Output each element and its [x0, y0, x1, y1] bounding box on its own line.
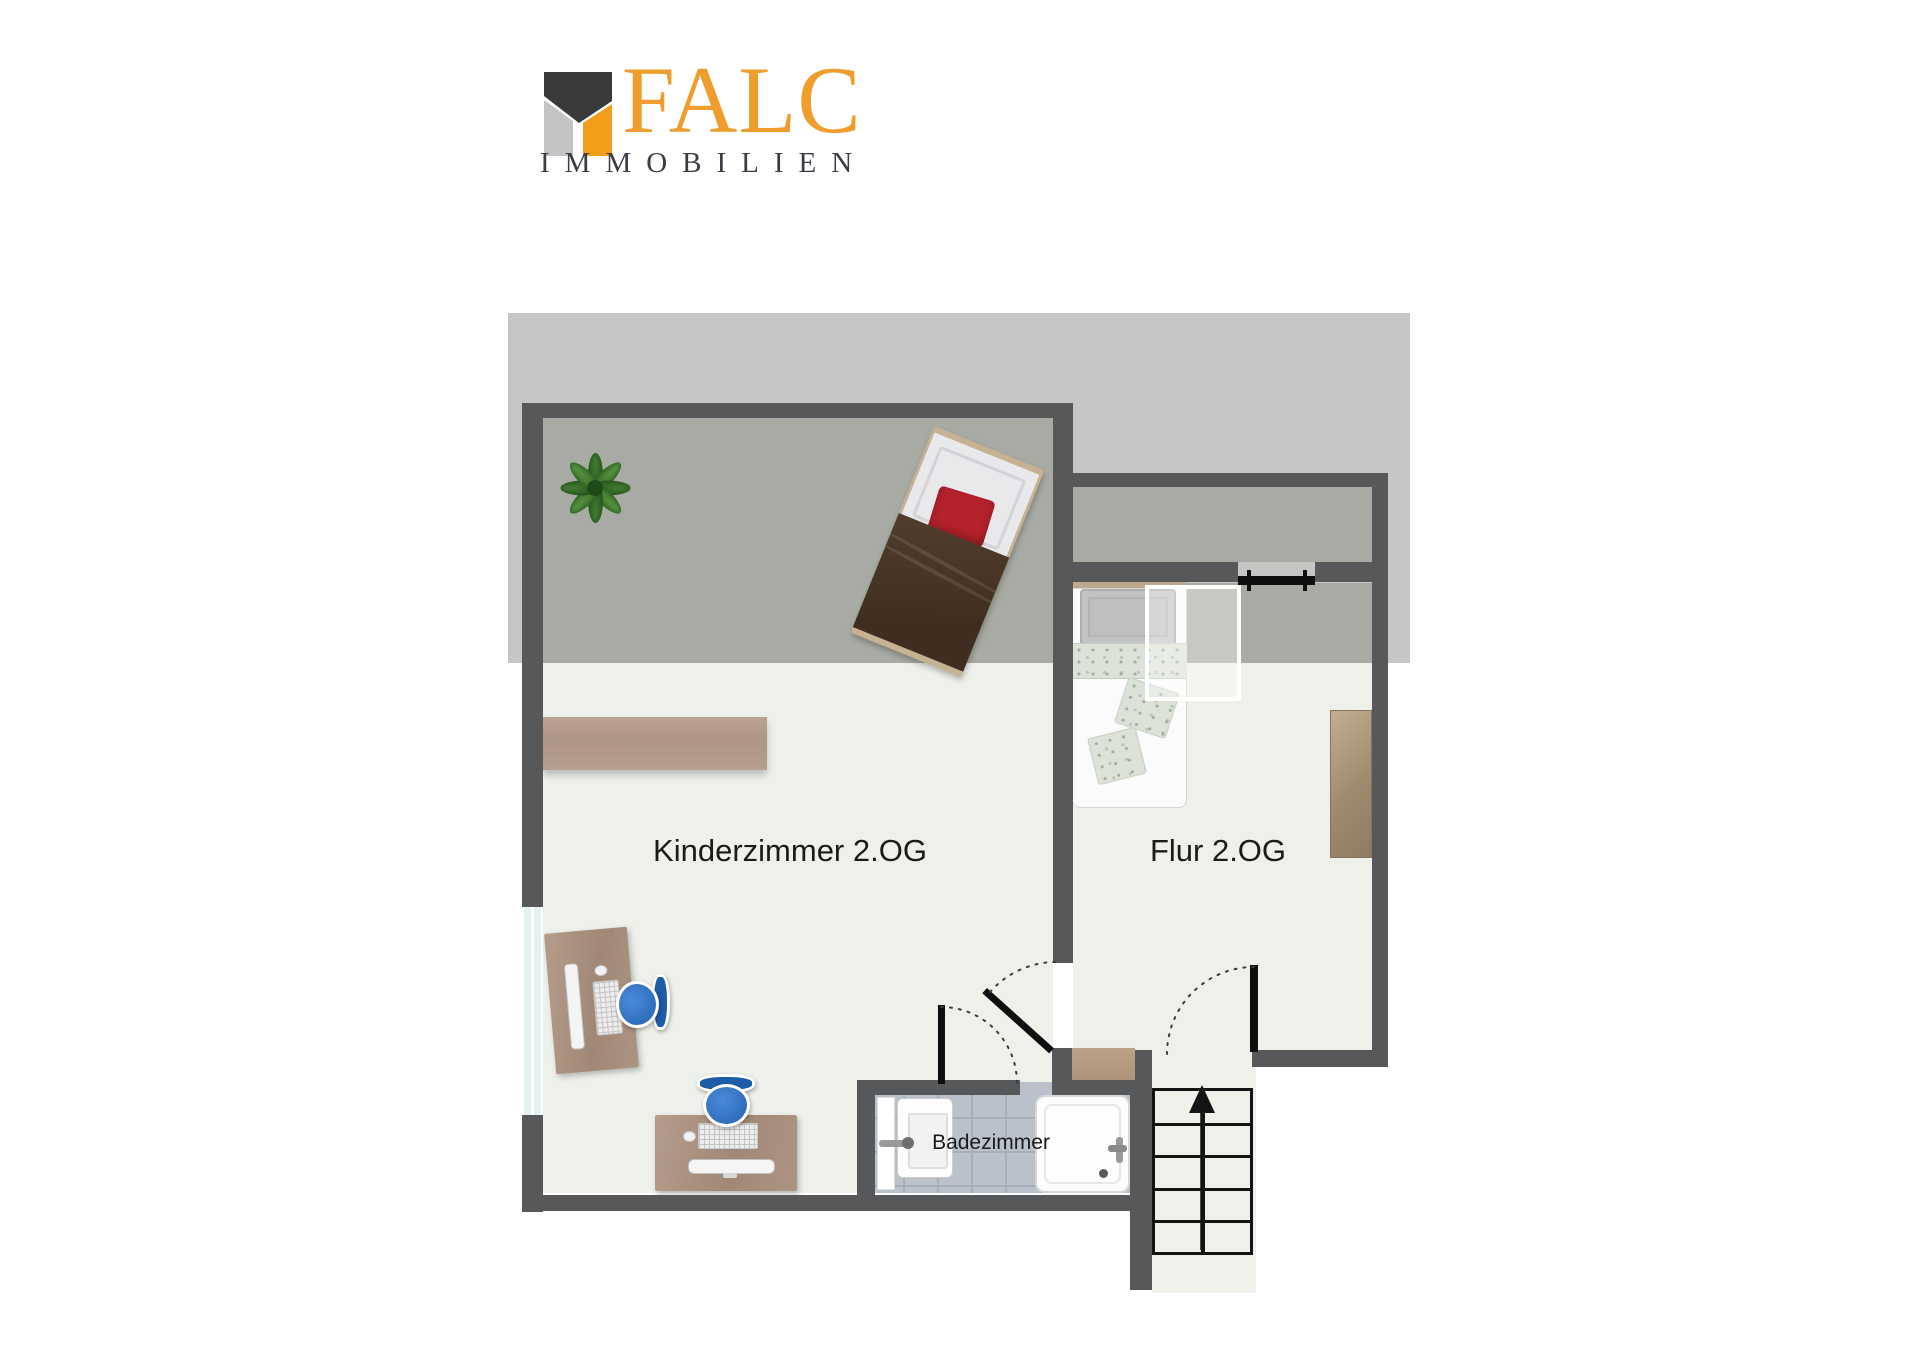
wall-bottom [522, 1195, 1153, 1211]
wall-left-upper [522, 403, 543, 907]
logo-subtitle-text: IMMOBILIEN [540, 147, 900, 180]
floorplan-page: FALC IMMOBILIEN [0, 0, 1920, 1357]
wall-flur-top-right [1315, 562, 1372, 582]
plant-icon [557, 450, 633, 526]
wall-stairs-left [1130, 1088, 1152, 1290]
shower-fixture [1108, 1145, 1127, 1152]
wall-eaves-room-top [1053, 473, 1388, 487]
door-frame-tick [1303, 570, 1307, 591]
plant-center [587, 480, 603, 496]
falc-logo-mark-icon [543, 71, 613, 157]
monitor-icon [688, 1159, 775, 1174]
wall-stair-stub [1135, 1050, 1152, 1088]
wall-bath-left [857, 1080, 875, 1205]
door-frame-tick [1247, 570, 1251, 591]
wall-kinderzimmer-flur [1053, 418, 1073, 963]
bathroom-door-threshold [1020, 1082, 1053, 1096]
room-label-flur: Flur 2.OG [1098, 833, 1338, 869]
bathroom-door-leaf [938, 1005, 945, 1084]
logo-brand-text: FALC [622, 56, 922, 151]
room-label-kinderzimmer: Kinderzimmer 2.OG [620, 833, 960, 869]
monitor-icon [564, 963, 585, 1050]
monitor-stand [723, 1173, 737, 1178]
chair-seat [616, 981, 659, 1028]
office-chair [692, 1074, 758, 1122]
skylight-window [1145, 585, 1241, 701]
stair-divider [1201, 1091, 1205, 1252]
wall-door-stub [1052, 1048, 1072, 1082]
hall-cabinet [1068, 1048, 1135, 1082]
office-chair [616, 966, 670, 1038]
wall-shelf [543, 717, 767, 770]
wall-right [1372, 473, 1388, 1067]
eaves-room-floor [1073, 487, 1372, 562]
stairs-door-leaf [1250, 965, 1258, 1052]
mouse-icon [683, 1131, 696, 1142]
window [524, 907, 541, 1115]
mouse-icon [594, 965, 608, 977]
wall-kinderzimmer-top [522, 403, 1073, 418]
chair-seat [703, 1084, 750, 1127]
wall-flur-top-left [1073, 562, 1238, 582]
room-label-badezimmer: Badezimmer [911, 1131, 1071, 1155]
wall-bath-top-right [1052, 1080, 1135, 1095]
shower-drain [1099, 1169, 1108, 1178]
staircase [1152, 1088, 1253, 1255]
wall-flur-bottom [1252, 1050, 1388, 1067]
